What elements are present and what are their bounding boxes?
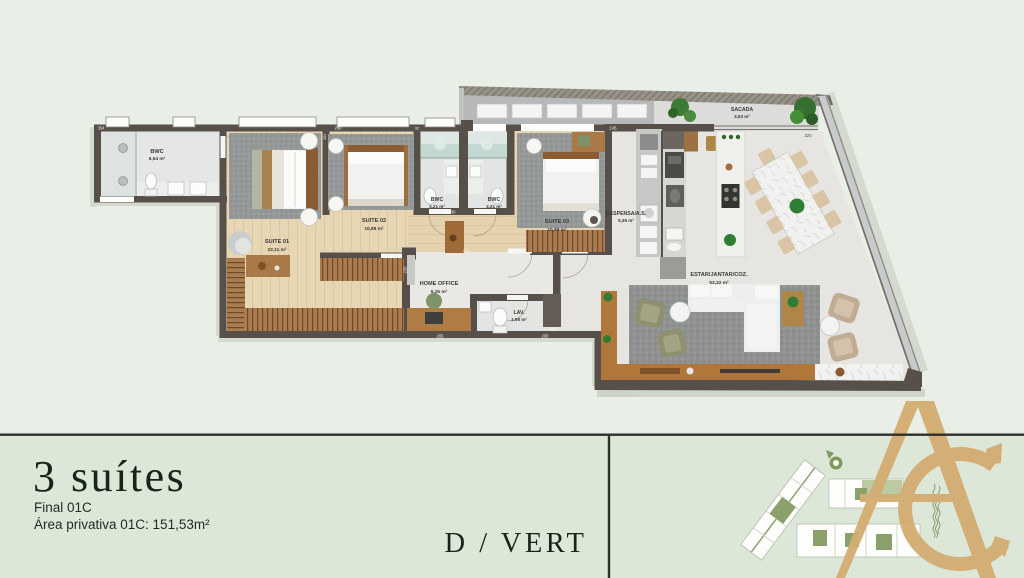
svg-text:10,88 m²: 10,88 m² [364, 226, 384, 232]
svg-text:130: 130 [449, 210, 457, 215]
svg-text:53,32 m²: 53,32 m² [709, 280, 729, 286]
svg-text:BWC: BWC [431, 197, 444, 203]
svg-text:SUITE 01: SUITE 01 [265, 239, 289, 245]
svg-text:5,25 m²: 5,25 m² [431, 289, 448, 295]
svg-text:3 suítes: 3 suítes [33, 452, 186, 501]
svg-text:SUITE 02: SUITE 02 [362, 218, 386, 224]
svg-text:1,98 m²: 1,98 m² [511, 317, 527, 322]
svg-text:LAV.: LAV. [514, 310, 526, 316]
svg-text:220: 220 [403, 266, 408, 274]
svg-text:600: 600 [220, 141, 225, 149]
svg-text:265: 265 [437, 334, 445, 339]
svg-text:3,21 m²: 3,21 m² [429, 204, 445, 209]
svg-text:260: 260 [335, 126, 343, 131]
svg-text:HOME OFFICE: HOME OFFICE [420, 281, 459, 287]
svg-text:BWC: BWC [150, 149, 163, 155]
svg-text:354: 354 [98, 126, 106, 131]
svg-text:3,21 m²: 3,21 m² [486, 204, 502, 209]
svg-text:200: 200 [542, 334, 550, 339]
svg-text:281: 281 [323, 134, 327, 140]
svg-text:BWC: BWC [488, 197, 501, 203]
svg-text:260: 260 [524, 126, 532, 131]
svg-text:DESPENSA/A.S.: DESPENSA/A.S. [606, 211, 647, 217]
svg-text:Área privativa 01C: 151,53m²: Área privativa 01C: 151,53m² [34, 517, 210, 532]
svg-text:6,54 m²: 6,54 m² [149, 156, 166, 162]
svg-text:400: 400 [463, 249, 471, 254]
svg-text:5,36 m²: 5,36 m² [618, 218, 634, 223]
svg-text:10,98 m²: 10,98 m² [547, 227, 567, 233]
svg-text:92: 92 [415, 127, 419, 131]
svg-text:Final 01C: Final 01C [34, 500, 92, 515]
svg-text:130: 130 [437, 210, 445, 215]
svg-text:443: 443 [808, 119, 816, 124]
svg-text:SUITE 03: SUITE 03 [545, 219, 569, 225]
svg-text:22,11 m²: 22,11 m² [268, 247, 287, 253]
svg-text:ESTAR/JANTAR/COZ.: ESTAR/JANTAR/COZ. [690, 272, 748, 278]
svg-text:D / VERT: D / VERT [445, 528, 588, 559]
svg-text:320: 320 [804, 133, 812, 138]
svg-text:3,53 m²: 3,53 m² [734, 114, 750, 119]
svg-text:145: 145 [610, 126, 618, 131]
svg-text:SACADA: SACADA [731, 107, 753, 113]
